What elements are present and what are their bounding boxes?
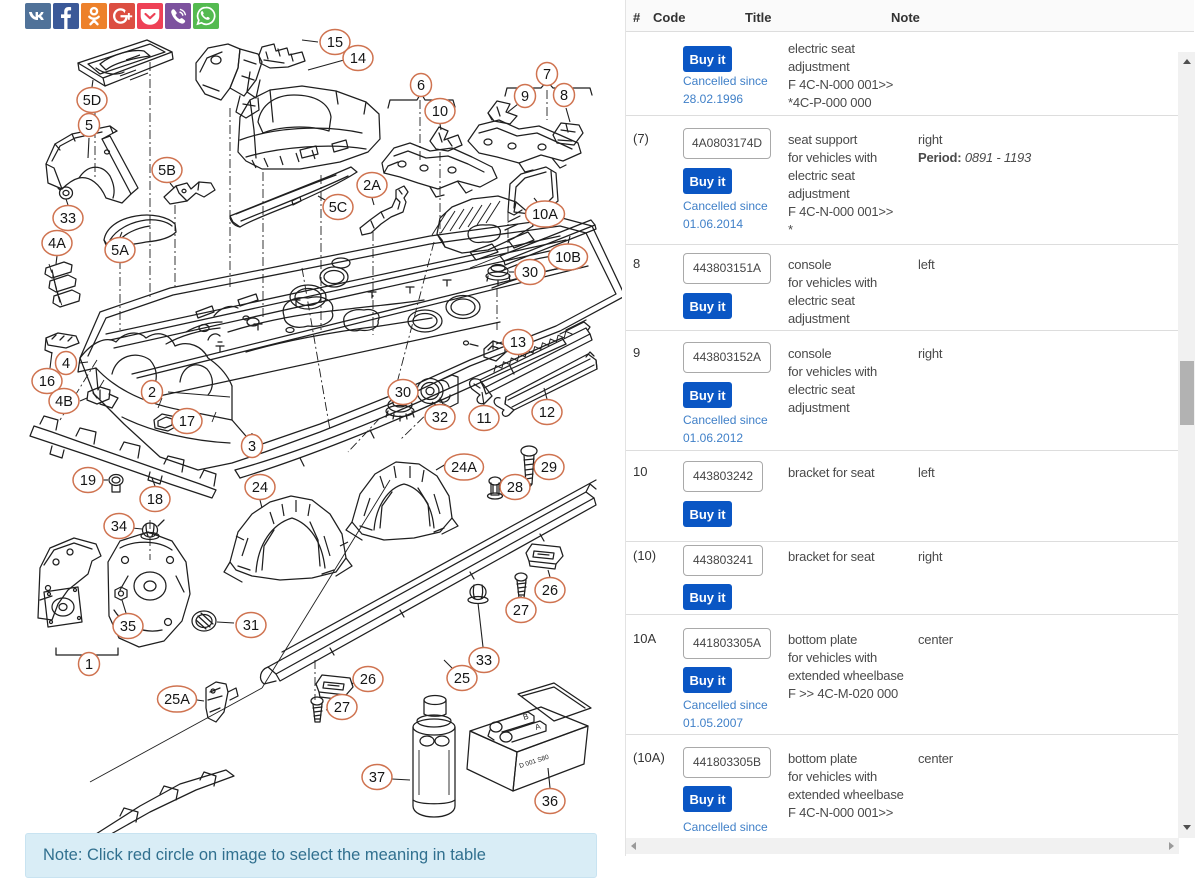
svg-text:13: 13: [510, 335, 526, 351]
svg-text:37: 37: [369, 770, 385, 786]
svg-text:26: 26: [360, 672, 376, 688]
svg-text:27: 27: [334, 700, 350, 716]
svg-text:5C: 5C: [329, 200, 348, 216]
svg-text:31: 31: [243, 618, 259, 634]
svg-text:14: 14: [350, 51, 366, 67]
svg-text:6: 6: [417, 78, 425, 94]
svg-text:19: 19: [80, 473, 96, 489]
svg-text:34: 34: [111, 519, 127, 535]
svg-text:5: 5: [85, 118, 93, 134]
svg-text:36: 36: [542, 794, 558, 810]
svg-text:28: 28: [507, 480, 523, 496]
svg-text:2: 2: [148, 385, 156, 401]
svg-text:8: 8: [560, 88, 568, 104]
svg-text:1: 1: [85, 657, 93, 673]
svg-text:D 001 S80: D 001 S80: [518, 754, 550, 770]
svg-text:2A: 2A: [363, 178, 381, 194]
svg-text:18: 18: [147, 492, 163, 508]
svg-text:33: 33: [60, 211, 76, 227]
svg-text:25A: 25A: [164, 692, 190, 708]
svg-text:35: 35: [120, 619, 136, 635]
svg-text:33: 33: [476, 653, 492, 669]
svg-text:15: 15: [327, 35, 343, 51]
svg-text:4B: 4B: [55, 394, 73, 410]
svg-text:5D: 5D: [83, 93, 102, 109]
svg-text:30: 30: [522, 265, 538, 281]
svg-text:10: 10: [432, 104, 448, 120]
svg-text:4A: 4A: [48, 236, 66, 252]
svg-text:16: 16: [39, 374, 55, 390]
svg-text:7: 7: [543, 67, 551, 83]
svg-text:5B: 5B: [158, 163, 176, 179]
svg-text:32: 32: [432, 410, 448, 426]
svg-text:24A: 24A: [451, 460, 477, 476]
svg-text:9: 9: [521, 89, 529, 105]
svg-text:4: 4: [62, 356, 70, 372]
svg-text:5A: 5A: [111, 243, 129, 259]
svg-text:26: 26: [542, 583, 558, 599]
svg-text:12: 12: [539, 405, 555, 421]
svg-text:10B: 10B: [555, 250, 581, 266]
svg-text:24: 24: [252, 480, 268, 496]
svg-text:27: 27: [513, 603, 529, 619]
svg-text:25: 25: [454, 671, 470, 687]
svg-text:3: 3: [248, 439, 256, 455]
svg-text:11: 11: [476, 411, 491, 427]
svg-text:17: 17: [179, 414, 195, 430]
svg-text:A: A: [534, 722, 542, 732]
svg-text:10A: 10A: [532, 207, 558, 223]
svg-text:29: 29: [541, 460, 557, 476]
svg-text:30: 30: [395, 385, 411, 401]
svg-text:B: B: [522, 712, 530, 722]
